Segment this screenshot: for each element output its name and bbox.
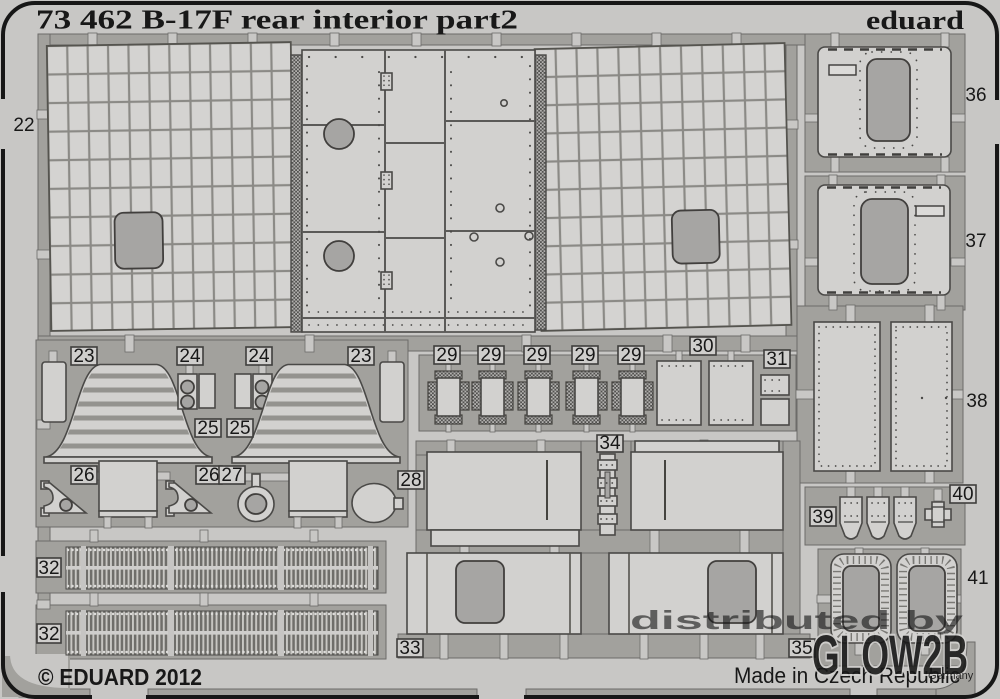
svg-text:28: 28 — [400, 470, 421, 491]
svg-text:23: 23 — [350, 346, 371, 367]
svg-text:29: 29 — [620, 345, 641, 366]
svg-text:40: 40 — [952, 484, 973, 505]
svg-text:31: 31 — [766, 349, 787, 370]
svg-text:26: 26 — [73, 465, 94, 486]
svg-text:41: 41 — [967, 568, 988, 589]
svg-text:34: 34 — [599, 433, 621, 454]
svg-text:32: 32 — [38, 624, 59, 645]
svg-text:39: 39 — [812, 507, 833, 528]
svg-text:25: 25 — [229, 418, 250, 439]
svg-text:38: 38 — [966, 391, 987, 412]
svg-text:23: 23 — [73, 346, 94, 367]
svg-text:30: 30 — [692, 336, 713, 357]
svg-text:24: 24 — [248, 346, 270, 367]
svg-text:33: 33 — [399, 638, 420, 659]
svg-text:37: 37 — [965, 231, 986, 252]
svg-text:29: 29 — [526, 345, 547, 366]
svg-text:22: 22 — [13, 115, 34, 136]
svg-text:27: 27 — [221, 465, 242, 486]
svg-text:25: 25 — [197, 418, 218, 439]
svg-text:36: 36 — [965, 85, 986, 106]
svg-text:32: 32 — [38, 558, 59, 579]
svg-text:29: 29 — [574, 345, 595, 366]
svg-text:26: 26 — [198, 465, 219, 486]
svg-text:© EDUARD 2012: © EDUARD 2012 — [38, 664, 202, 690]
svg-text:eduard: eduard — [866, 5, 964, 35]
svg-text:29: 29 — [436, 345, 457, 366]
svg-text:35: 35 — [791, 638, 812, 659]
svg-text:73 462 B-17F rear interior: 73 462 B-17F rear interior part2 — [36, 5, 518, 35]
svg-text:Germany: Germany — [928, 670, 974, 682]
svg-text:29: 29 — [480, 345, 501, 366]
svg-text:24: 24 — [179, 346, 201, 367]
